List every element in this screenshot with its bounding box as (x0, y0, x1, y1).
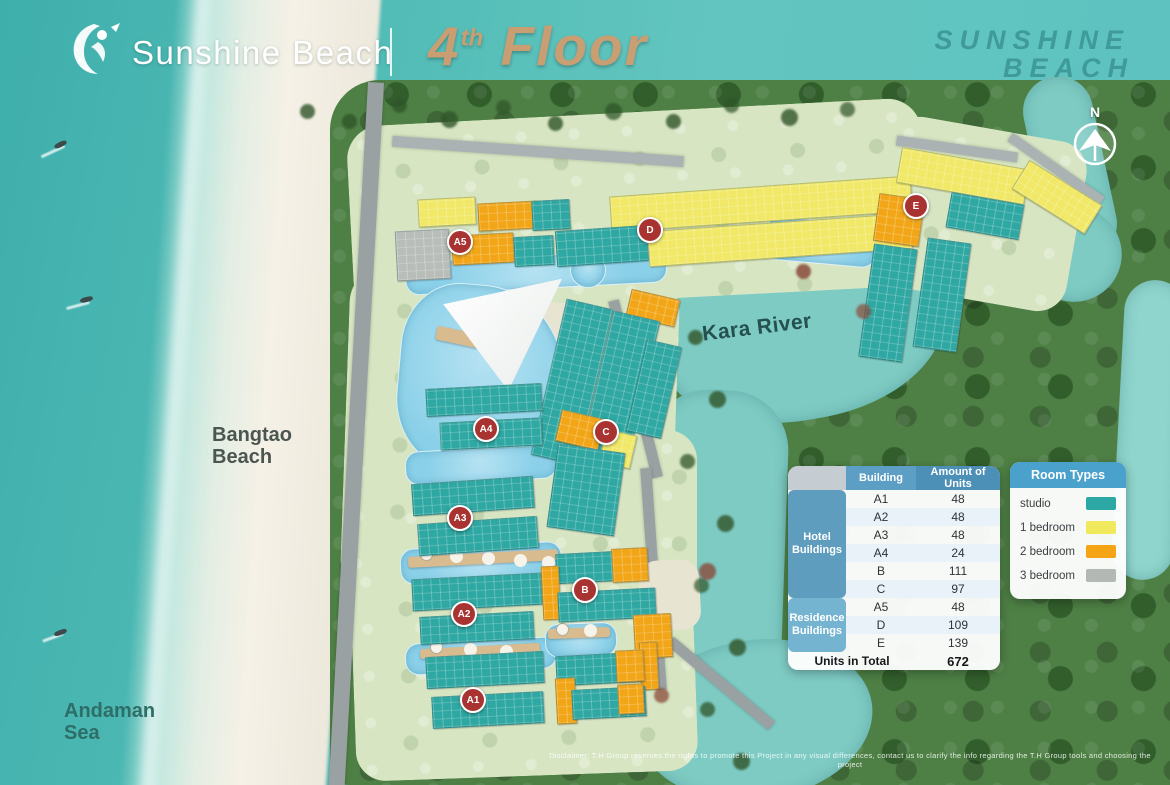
table-total-row: Units in Total 672 (788, 652, 1000, 670)
disclaimer-text: Disclaimer: T.H Group reserves the right… (540, 751, 1160, 769)
building-block (615, 649, 645, 682)
three-bedroom-color-swatch (1086, 569, 1116, 582)
units-cell: 24 (916, 544, 1000, 562)
table-corner-cell (788, 466, 846, 490)
building-cell: A2 (846, 508, 916, 526)
legend-label: 3 bedroom (1020, 570, 1075, 582)
legend-item: 1 bedroom (1020, 521, 1116, 534)
marker-a5: A5 (447, 229, 473, 255)
building-block (617, 683, 645, 714)
building-cell: E (846, 634, 916, 652)
compass-north-label: N (1070, 104, 1120, 120)
marker-b: B (572, 577, 598, 603)
building-cell: A5 (846, 598, 916, 616)
watermark-line1: SUNSHINE (934, 25, 1130, 55)
watermark-line2: BEACH (934, 54, 1134, 82)
boat-wake (66, 301, 90, 310)
room-types-title: Room Types (1010, 462, 1126, 488)
units-table-card: Building Amount of Units Hotel Buildings… (788, 466, 1000, 670)
pool-umbrellas-3 (556, 623, 569, 636)
legend-item: 3 bedroom (1020, 569, 1116, 582)
tree-row-north (300, 104, 315, 119)
floor-number: 4 (428, 15, 461, 77)
units-cell: 139 (916, 634, 1000, 652)
units-cell: 48 (916, 508, 1000, 526)
label-andaman-line2: Sea (64, 722, 100, 744)
tree-row-river (688, 330, 703, 345)
legend-item: 2 bedroom (1020, 545, 1116, 558)
building-block (417, 197, 476, 228)
units-cell: 109 (916, 616, 1000, 634)
legend-label: 2 bedroom (1020, 546, 1075, 558)
building-block (395, 229, 452, 282)
units-cell: 111 (916, 562, 1000, 580)
building-block (611, 547, 649, 583)
units-cell: 48 (916, 490, 1000, 508)
legend-label: studio (1020, 498, 1051, 510)
header-divider (390, 28, 392, 76)
marker-a4: A4 (473, 416, 499, 442)
building-cell: A1 (846, 490, 916, 508)
building-block (477, 200, 538, 231)
table-row: Hotel Buildings A1 48 (788, 490, 1000, 508)
one-bedroom-color-swatch (1086, 521, 1116, 534)
building-block (513, 235, 555, 267)
marker-a2: A2 (451, 601, 477, 627)
column-header-building: Building (846, 466, 916, 490)
table-header-row: Building Amount of Units (788, 466, 1000, 490)
marker-e: E (903, 193, 929, 219)
column-header-units: Amount of Units (916, 466, 1000, 490)
floor-ordinal: th (461, 25, 484, 52)
units-table: Building Amount of Units Hotel Buildings… (788, 466, 1000, 670)
page-title: 4th Floor (428, 14, 648, 78)
brand-logo-icon (62, 20, 122, 80)
building-block (419, 611, 534, 645)
building-block (555, 225, 649, 267)
building-block (546, 444, 625, 537)
building-cell: A4 (846, 544, 916, 562)
room-types-legend: Room Types studio 1 bedroom 2 bedroom 3 … (1010, 462, 1126, 599)
label-bangtao-beach: Bangtao Beach (212, 424, 292, 469)
label-andaman-line1: Andaman (64, 700, 155, 722)
total-label: Units in Total (788, 652, 916, 670)
two-bedroom-color-swatch (1086, 545, 1116, 558)
group-hotel-buildings: Hotel Buildings (788, 490, 846, 598)
building-cell: B (846, 562, 916, 580)
units-cell: 48 (916, 598, 1000, 616)
table-row: Residence Buildings A5 48 (788, 598, 1000, 616)
compass: N (1070, 104, 1120, 173)
building-block (425, 651, 545, 689)
units-cell: 97 (916, 580, 1000, 598)
building-block (431, 691, 545, 729)
building-block (531, 199, 571, 231)
studio-color-swatch (1086, 497, 1116, 510)
site-plan-poster: A5 D E A4 C A3 A2 B A1 Kara River Bangta… (0, 0, 1170, 785)
red-trees (796, 264, 811, 279)
building-cell: D (846, 616, 916, 634)
marker-a1: A1 (460, 687, 486, 713)
total-value: 672 (916, 652, 1000, 670)
legend-label: 1 bedroom (1020, 522, 1075, 534)
label-andaman-sea: Andaman Sea (64, 700, 155, 745)
units-cell: 48 (916, 526, 1000, 544)
marker-c: C (593, 419, 619, 445)
legend-item: studio (1020, 497, 1116, 510)
compass-rose-icon (1071, 120, 1119, 168)
brand-name: Sunshine Beach (132, 34, 393, 72)
label-bangtao-line1: Bangtao (212, 424, 292, 446)
label-bangtao-line2: Beach (212, 446, 272, 468)
floor-word: Floor (501, 15, 648, 77)
group-residence-buildings: Residence Buildings (788, 598, 846, 652)
marker-a3: A3 (447, 505, 473, 531)
building-block (411, 573, 542, 612)
background-watermark: SUNSHINE BEACH (930, 26, 1130, 83)
building-cell: A3 (846, 526, 916, 544)
building-cell: C (846, 580, 916, 598)
marker-d: D (637, 217, 663, 243)
